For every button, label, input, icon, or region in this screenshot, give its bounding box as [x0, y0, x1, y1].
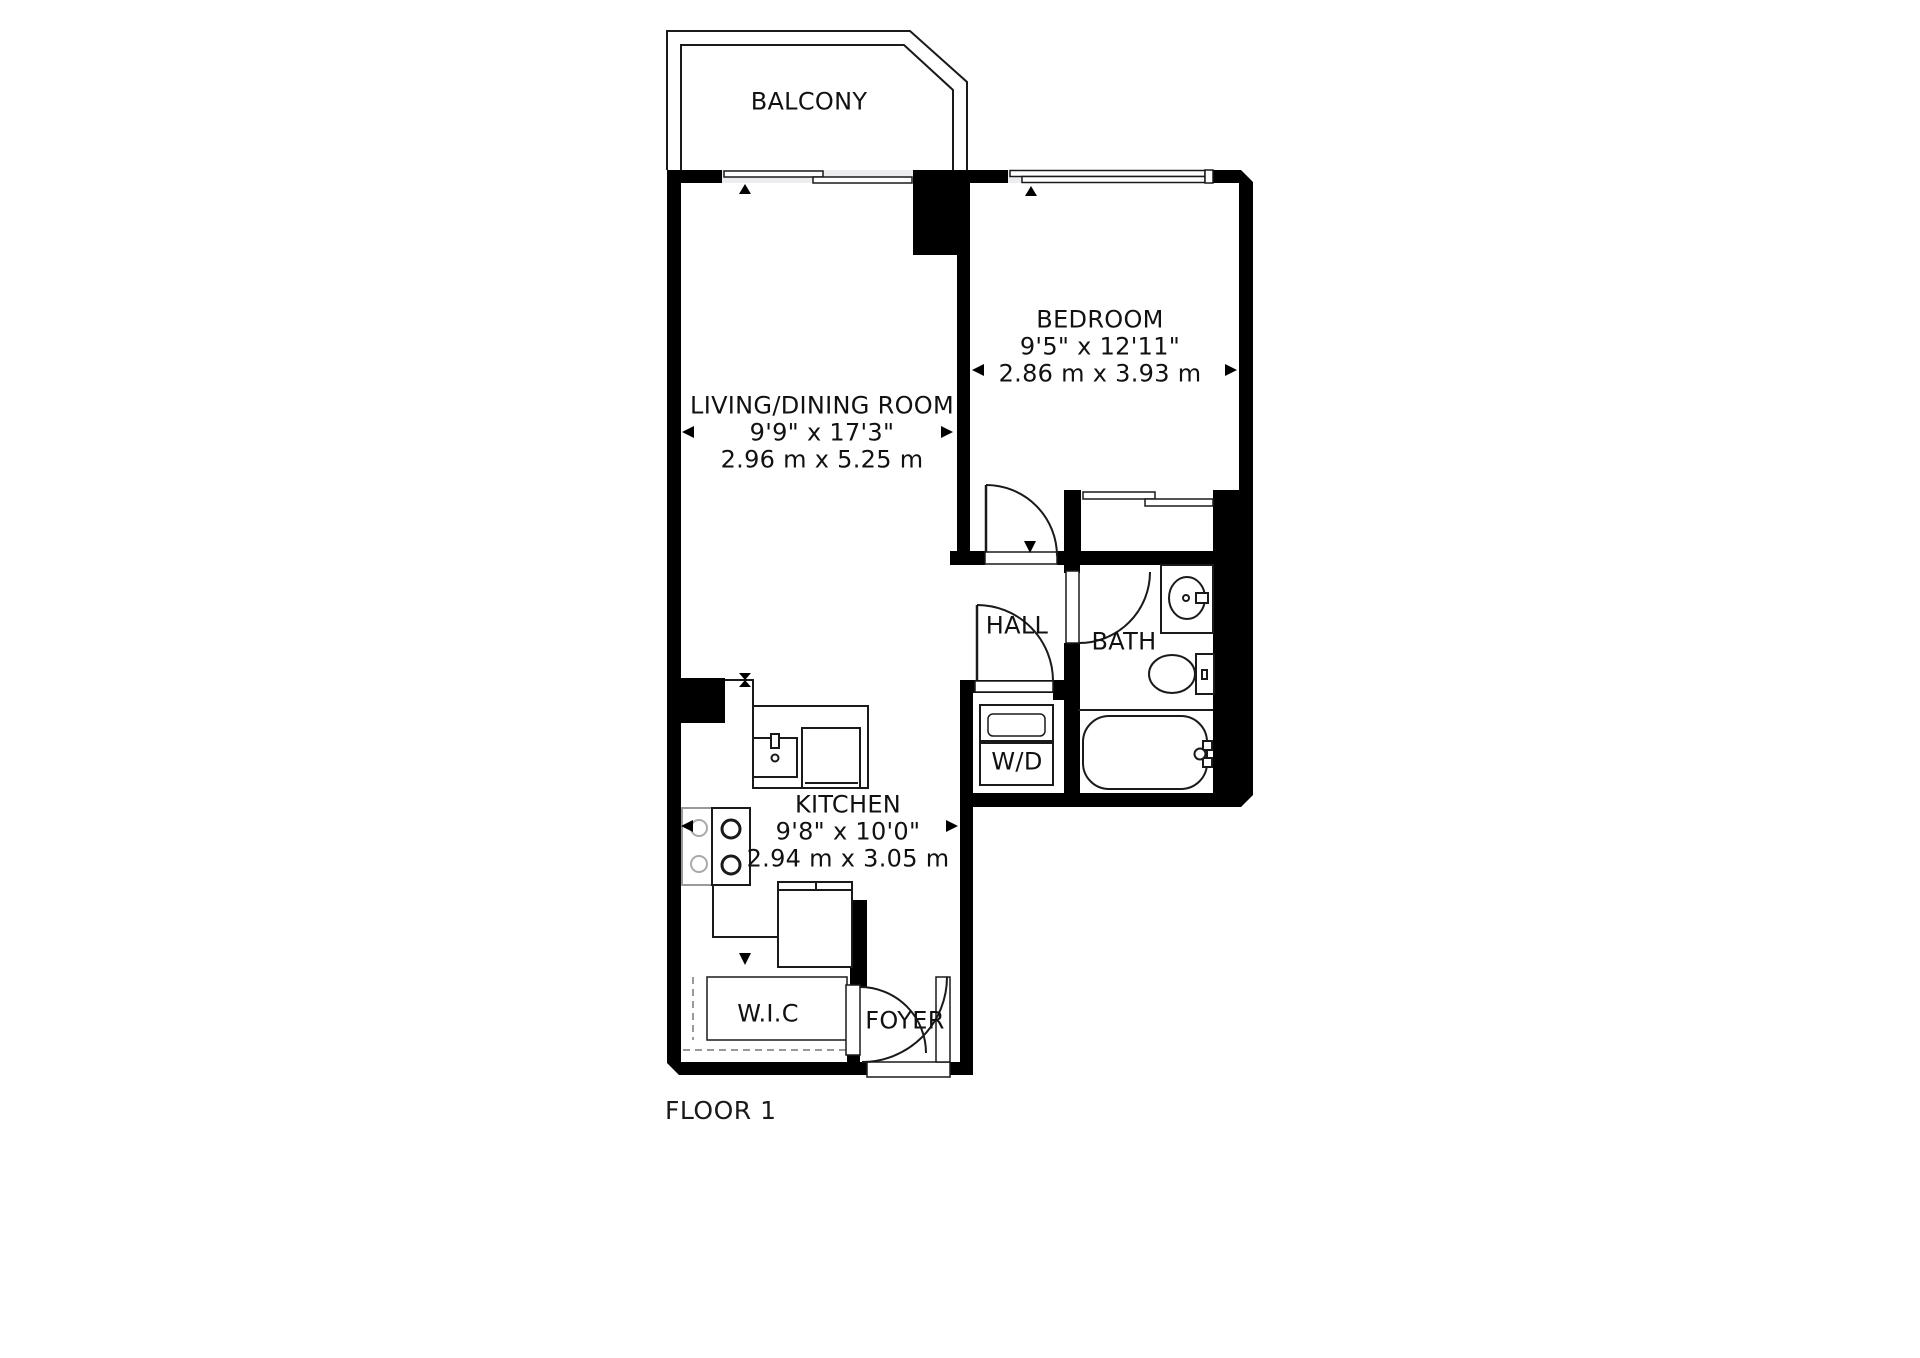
bedroom-closet-sliding-doors: [1083, 492, 1213, 506]
room-label-washer-dryer: W/D: [991, 749, 1042, 776]
bedroom-window-end-cap: [1205, 170, 1213, 183]
bathtub-faucet-knob: [1195, 749, 1206, 760]
kitchen-lower-counter-line: [713, 885, 778, 937]
room-dim-imperial: 9'5" x 12'11": [999, 334, 1202, 361]
wd-machine-door: [988, 714, 1045, 736]
room-name: BATH: [1092, 629, 1157, 656]
wall-bath-left-lower: [1064, 643, 1080, 793]
arrow-living-bottom: [739, 673, 751, 680]
room-label-living-dining: LIVING/DINING ROOM 9'9" x 17'3" 2.96 m x…: [690, 393, 954, 474]
wall-bedroom-top-left: [968, 170, 1008, 183]
bathtub-faucet-plate-1: [1203, 741, 1212, 750]
bathtub: [1083, 716, 1207, 789]
wall-kitchen-stub: [678, 678, 725, 723]
bathtub-faucet-plate-2: [1203, 758, 1212, 767]
stove-burner-3: [722, 820, 740, 838]
room-dim-imperial: 9'8" x 10'0": [747, 819, 950, 846]
wall-right-upper: [1239, 170, 1253, 493]
kitchen-boundary-line: [725, 680, 753, 706]
floor-title: FLOOR 1: [665, 1096, 777, 1125]
wall-bedroom-bottom-band: [1057, 551, 1215, 565]
room-label-foyer: FOYER: [865, 1008, 944, 1035]
wall-left: [667, 170, 681, 1075]
room-dim-metric: 2.86 m x 3.93 m: [999, 361, 1202, 388]
vanity-faucet: [1196, 593, 1208, 603]
stove-burner-2: [691, 856, 707, 872]
wall-living-bedroom-divider: [957, 253, 970, 565]
stove-burner-1: [691, 820, 707, 836]
wall-bath-bottom-band: [960, 793, 1253, 807]
arrow-living-top: [739, 184, 751, 194]
wic-door-leaf: [846, 985, 860, 1055]
stove-burner-4: [722, 856, 740, 874]
floor-plan-page: BALCONY LIVING/DINING ROOM 9'9" x 17'3" …: [0, 0, 1920, 1358]
room-dim-metric: 2.94 m x 3.05 m: [747, 846, 950, 873]
wall-pillar: [913, 170, 970, 255]
closet-slider-panel-2: [1145, 499, 1213, 506]
closet-slider-panel-1: [1083, 492, 1155, 499]
refrigerator: [802, 728, 860, 788]
room-dim-metric: 2.96 m x 5.25 m: [690, 447, 954, 474]
room-name: LIVING/DINING ROOM: [690, 393, 954, 420]
room-label-bath: BATH: [1092, 629, 1157, 656]
bedroom-door: [985, 485, 1057, 564]
room-label-wic: W.I.C: [737, 1001, 799, 1028]
toilet-bowl: [1149, 655, 1195, 693]
arrow-kitchen-bottom: [739, 953, 751, 965]
wall-bottom-right: [950, 1062, 973, 1075]
wall-bottom-left: [667, 1062, 867, 1075]
wall-bedroom-door-stub: [950, 551, 985, 565]
wall-right-lower: [1213, 490, 1253, 807]
wall-foyer-right-strip: [960, 680, 973, 1075]
bath-door-leaf: [1066, 571, 1079, 643]
room-name: FOYER: [865, 1008, 944, 1035]
wall-hall-door-stub: [1053, 680, 1080, 700]
room-label-bedroom: BEDROOM 9'5" x 12'11" 2.86 m x 3.93 m: [999, 307, 1202, 388]
room-dim-imperial: 9'9" x 17'3": [690, 420, 954, 447]
room-name: W.I.C: [737, 1001, 799, 1028]
arrow-bedroom-bottom: [1024, 541, 1036, 553]
bedroom-door-opening: [985, 552, 1057, 564]
room-name: BALCONY: [751, 89, 868, 116]
vanity-sink-drain: [1183, 595, 1189, 601]
floor-plan-drawing: [0, 0, 1920, 1358]
entry-door-threshold: [867, 1062, 950, 1077]
kitchen-sink-faucet: [771, 734, 779, 748]
kitchen-sink-drain: [772, 755, 779, 762]
room-label-hall: HALL: [986, 613, 1048, 640]
room-name: W/D: [991, 749, 1042, 776]
arrow-kitchen-top: [739, 680, 751, 687]
arrow-bedroom-right: [1225, 364, 1237, 376]
room-label-balcony: BALCONY: [751, 89, 868, 116]
room-name: KITCHEN: [747, 792, 950, 819]
kitchen-island-cabinet: [778, 882, 852, 967]
arrow-bedroom-top: [1025, 186, 1037, 196]
bedroom-door-swing-arc: [986, 485, 1057, 556]
balcony-slider-panel-2: [813, 177, 912, 183]
toilet-flush-button: [1202, 670, 1207, 679]
room-name: HALL: [986, 613, 1048, 640]
wall-balcony-left-stub: [667, 170, 722, 183]
room-name: BEDROOM: [999, 307, 1202, 334]
room-label-kitchen: KITCHEN 9'8" x 10'0" 2.94 m x 3.05 m: [747, 792, 950, 873]
hall-door-opening: [975, 681, 1053, 692]
bedroom-window-panel-2: [1022, 177, 1205, 183]
balcony-slider-panel-1: [724, 171, 823, 177]
arrow-bedroom-left: [972, 364, 984, 376]
bedroom-window-panel-1: [1010, 171, 1205, 177]
